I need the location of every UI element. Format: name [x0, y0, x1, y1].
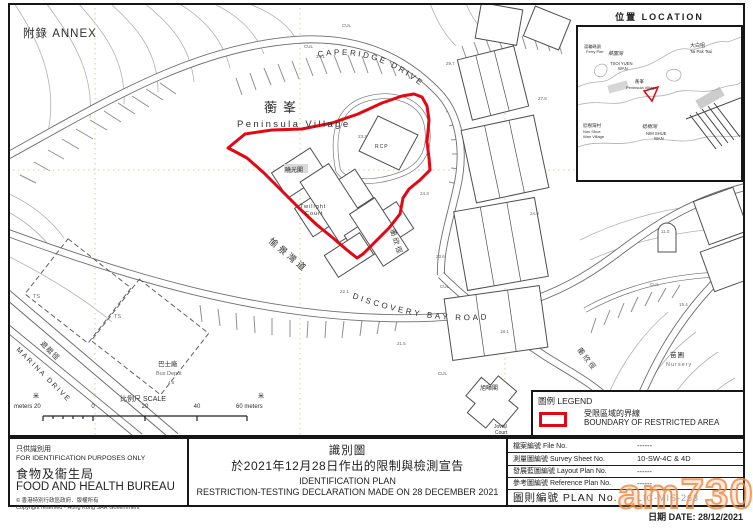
svg-text:Ferry Pier: Ferry Pier — [586, 49, 604, 54]
svg-text:18.1: 18.1 — [500, 329, 509, 334]
bus-depot-zh-label: 巴士廠 — [158, 359, 178, 368]
svg-text:CUL: CUL — [650, 282, 659, 287]
location-inset-title: 位置 LOCATION — [576, 10, 743, 23]
caperidge-zh-label-2: 蘅欣徑 — [575, 346, 599, 373]
svg-text:34.1: 34.1 — [316, 54, 325, 59]
bus-depot-level: 4.8 — [168, 380, 175, 385]
restricted-area-swatch — [539, 412, 567, 427]
jovial-court-zh-label: 旭暉閣 — [480, 384, 498, 392]
identification-plan-page: 附錄 ANNEX 蘅峯 Peninsula Village CAPERIDGE … — [0, 0, 753, 529]
legend-title: 圖例 LEGEND — [533, 392, 743, 407]
location-inset-map: 大白咀 Tai Pak Tsui 渡輪碼頭 Ferry Pier 菜園灣 TSO… — [576, 25, 743, 182]
rcp-building — [359, 116, 418, 170]
village-name-en: Peninsula Village — [237, 119, 351, 130]
plan-number-value: LIC-MIS-263 — [637, 493, 699, 503]
svg-text:24.9: 24.9 — [530, 211, 539, 216]
twilight-court-zh-label: 曉光閣 — [285, 166, 303, 174]
rcp-label: RCP — [375, 144, 389, 150]
svg-text:Peninsula Village: Peninsula Village — [626, 85, 657, 90]
svg-text:菜園灣: 菜園灣 — [608, 50, 624, 57]
svg-text:WAN: WAN — [654, 136, 664, 141]
table-row-plan-no: 圖則編號 PLAN No. LIC-MIS-263 — [508, 490, 743, 505]
svg-text:23.2: 23.2 — [358, 134, 367, 139]
scale-right-label: 60 meters — [236, 404, 263, 410]
plan-reference-table: 檔案編號 File No. ------ 測量圖編號 Survey Sheet … — [506, 437, 745, 507]
svg-text:40: 40 — [194, 404, 201, 410]
svg-text:CUL: CUL — [440, 284, 449, 289]
annex-label: 附錄 ANNEX — [23, 26, 97, 40]
legend-item-en: BOUNDARY OF RESTRICTED AREA — [584, 418, 719, 428]
plan-title-en: IDENTIFICATION PLAN — [189, 475, 506, 487]
svg-text:CUL: CUL — [438, 371, 447, 376]
twilight-court-label-2: Court — [305, 211, 323, 217]
nursery-zh-label: 苗圃 — [670, 351, 685, 359]
table-row-reference-plan: 參考圖編號 Reference Plan No. ------ — [508, 478, 743, 490]
svg-text:Wan Village: Wan Village — [583, 134, 605, 139]
svg-text:CUL: CUL — [304, 44, 313, 49]
svg-text:21.5: 21.5 — [397, 341, 406, 346]
nursery-label: Nursery — [666, 362, 692, 368]
plan-title-zh: 識別圖 — [189, 444, 506, 458]
svg-text:稔樹灣: 稔樹灣 — [642, 123, 658, 130]
discovery-bay-road-zh-label: 愉景灣道 — [267, 235, 311, 274]
plan-subtitle-en: RESTRICTION-TESTING DECLARATION MADE ON … — [189, 487, 506, 498]
svg-text:蘅峯: 蘅峯 — [635, 78, 644, 85]
table-row-file-no: 檔案編號 File No. ------ — [508, 439, 743, 453]
legend-box: 圖例 LEGEND 受限區域的界線 BOUNDARY OF RESTRICTED… — [531, 390, 745, 437]
svg-text:稔樹灣村: 稔樹灣村 — [583, 122, 601, 129]
id-note-zh: 只供識別用 — [16, 445, 187, 454]
table-row-survey-sheet: 測量圖編號 Survey Sheet No. 10-SW-4C & 4D — [508, 453, 743, 466]
ts-label-2: TS — [114, 314, 121, 320]
inset-labels: 大白咀 Tai Pak Tsui 渡輪碼頭 Ferry Pier 菜園灣 TSO… — [583, 42, 712, 141]
svg-text:CUL: CUL — [342, 23, 351, 28]
svg-text:WAN: WAN — [618, 66, 628, 71]
svg-text:米: 米 — [33, 392, 39, 400]
jovial-court-label-2: Court — [495, 430, 508, 436]
svg-text:24.3: 24.3 — [420, 191, 429, 196]
twilight-court-label-1: Twilight — [300, 204, 326, 210]
svg-text:20: 20 — [142, 404, 149, 410]
jovial-court-building — [458, 368, 526, 436]
svg-text:11.0: 11.0 — [661, 229, 670, 234]
bureau-name-zh: 食物及衞生局 — [16, 467, 187, 481]
plan-subtitle-zh: 於2021年12月28日作出的限制與檢測宣告 — [189, 458, 506, 474]
plan-title-box: 識別圖 於2021年12月28日作出的限制與檢測宣告 IDENTIFICATIO… — [187, 437, 508, 507]
identification-note-box: 只供識別用 FOR IDENTIFICATION PURPOSES ONLY 食… — [8, 437, 189, 507]
id-note-en: FOR IDENTIFICATION PURPOSES ONLY — [16, 454, 187, 463]
svg-text:米: 米 — [258, 392, 264, 400]
svg-text:22.1: 22.1 — [340, 289, 349, 294]
inset-marina-piers — [686, 97, 741, 149]
svg-text:Tai Pak Tsui: Tai Pak Tsui — [690, 49, 712, 54]
svg-text:大白咀: 大白咀 — [690, 42, 705, 49]
scale-left-label: meters 20 — [14, 404, 41, 410]
copyright-en: Copyright reserved - Hong Kong SAR Gover… — [16, 505, 187, 512]
village-name-zh: 蘅峯 — [264, 100, 302, 115]
ts-label-1: TS — [33, 294, 40, 300]
scale-title: 比例尺 SCALE — [120, 394, 166, 403]
svg-text:15.4: 15.4 — [679, 302, 688, 307]
svg-text:23.6: 23.6 — [436, 254, 445, 259]
bureau-name-en: FOOD AND HEALTH BUREAU — [16, 481, 187, 494]
svg-text:29.7: 29.7 — [446, 61, 455, 66]
svg-text:27.8: 27.8 — [538, 96, 547, 101]
table-row-layout-plan: 發展藍圖編號 Layout Plan No. ------ — [508, 466, 743, 478]
bus-depot-label: Bus Depot — [156, 371, 182, 377]
legend-item-zh: 受限區域的界線 — [584, 409, 719, 418]
plan-date: 日期 DATE: 28/12/2021 — [506, 510, 743, 523]
